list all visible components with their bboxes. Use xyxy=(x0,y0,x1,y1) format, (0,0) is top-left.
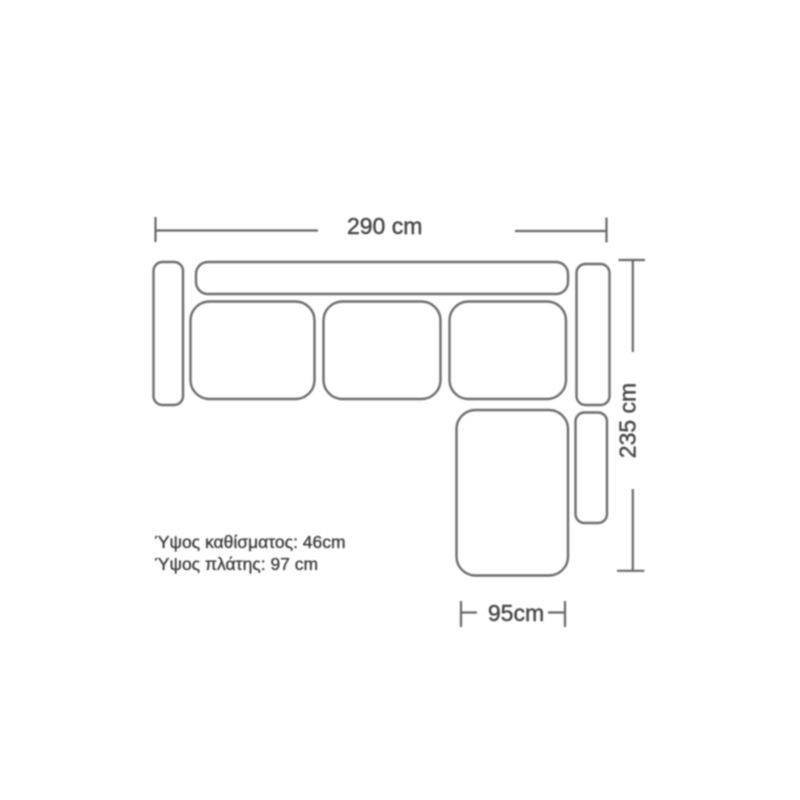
svg-text:290 cm: 290 cm xyxy=(347,213,422,239)
svg-text:Ύψος καθίσματος: 46cm: Ύψος καθίσματος: 46cm xyxy=(155,532,346,552)
svg-text:Ύψος πλάτης: 97 cm: Ύψος πλάτης: 97 cm xyxy=(155,554,319,574)
svg-text:95cm: 95cm xyxy=(488,600,544,626)
svg-text:235 cm: 235 cm xyxy=(615,383,641,458)
